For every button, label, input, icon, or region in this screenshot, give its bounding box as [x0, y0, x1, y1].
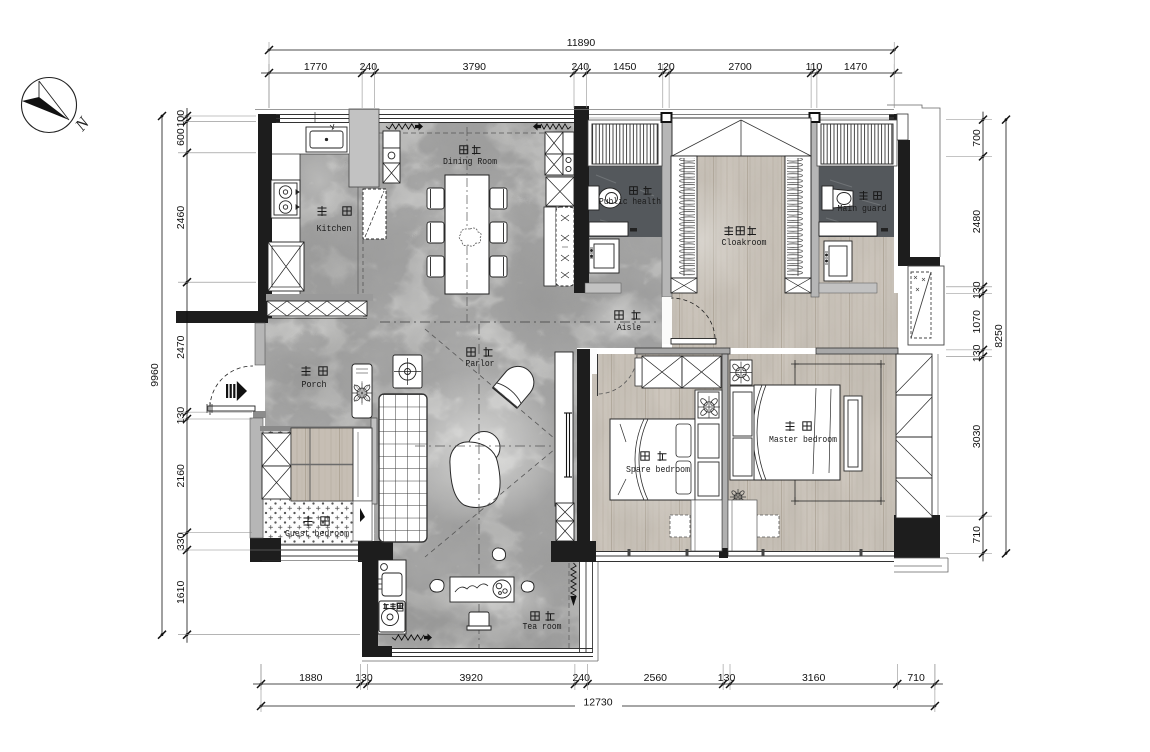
- svg-text:2560: 2560: [644, 672, 668, 684]
- svg-text:710: 710: [971, 526, 983, 544]
- svg-text:700: 700: [971, 129, 983, 147]
- svg-text:2460: 2460: [175, 206, 187, 230]
- svg-text:120: 120: [657, 61, 675, 73]
- svg-text:2480: 2480: [971, 210, 983, 234]
- svg-text:2160: 2160: [175, 464, 187, 488]
- svg-text:3920: 3920: [459, 672, 483, 684]
- svg-text:130: 130: [971, 281, 983, 299]
- svg-text:1610: 1610: [175, 581, 187, 605]
- svg-text:Kitchen: Kitchen: [317, 224, 352, 234]
- svg-text:130: 130: [175, 407, 187, 425]
- svg-text:1450: 1450: [613, 61, 637, 73]
- svg-text:9960: 9960: [149, 363, 161, 387]
- svg-text:12730: 12730: [583, 697, 612, 709]
- svg-text:330: 330: [175, 532, 187, 550]
- svg-text:710: 710: [907, 672, 925, 684]
- svg-text:Porch: Porch: [302, 380, 327, 390]
- svg-text:130: 130: [355, 672, 373, 684]
- svg-text:Cloakroom: Cloakroom: [722, 238, 767, 248]
- svg-text:130: 130: [971, 344, 983, 362]
- svg-text:Aisle: Aisle: [617, 323, 641, 333]
- svg-text:1470: 1470: [844, 61, 868, 73]
- svg-text:Parlor: Parlor: [466, 359, 495, 369]
- svg-text:2700: 2700: [728, 61, 752, 73]
- svg-text:2470: 2470: [175, 335, 187, 359]
- svg-text:110: 110: [806, 61, 823, 73]
- svg-text:1770: 1770: [304, 61, 328, 73]
- svg-text:Public health: Public health: [599, 197, 661, 207]
- svg-text:Guest bedroom: Guest bedroom: [285, 529, 349, 539]
- svg-text:Tea room: Tea room: [523, 622, 562, 632]
- svg-text:600: 600: [175, 128, 187, 146]
- svg-text:3790: 3790: [463, 61, 487, 73]
- svg-text:130: 130: [718, 672, 736, 684]
- svg-text:Master bedroom: Master bedroom: [769, 435, 837, 445]
- svg-text:Main guard: Main guard: [838, 204, 887, 214]
- svg-text:11890: 11890: [567, 37, 596, 49]
- svg-text:Dining Room: Dining Room: [443, 157, 497, 167]
- svg-text:8250: 8250: [993, 324, 1005, 348]
- svg-text:100: 100: [175, 110, 187, 128]
- svg-text:1880: 1880: [299, 672, 323, 684]
- svg-text:3030: 3030: [971, 425, 983, 449]
- svg-text:3160: 3160: [802, 672, 826, 684]
- svg-text:1070: 1070: [971, 310, 983, 334]
- svg-text:Spare bedroom: Spare bedroom: [626, 465, 690, 475]
